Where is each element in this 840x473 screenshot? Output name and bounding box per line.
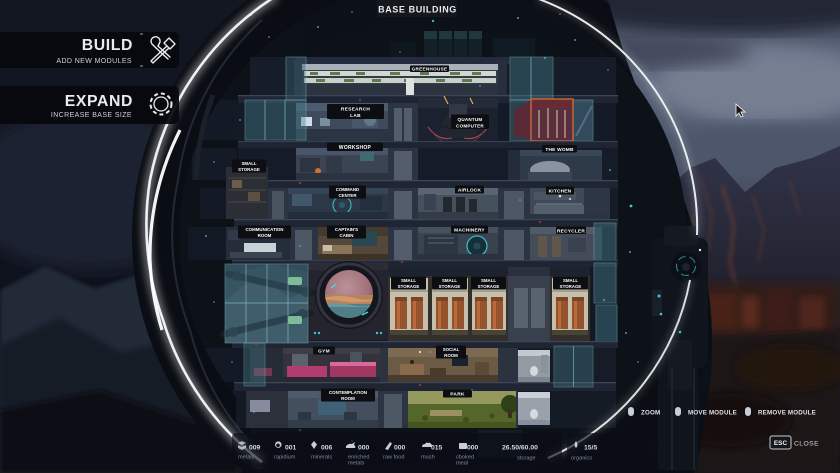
svg-text:CONTEMPLATION: CONTEMPLATION bbox=[329, 390, 367, 395]
svg-text:SMALL: SMALL bbox=[401, 278, 416, 283]
svg-text:MACHINERY: MACHINERY bbox=[454, 228, 485, 234]
svg-text:EXPAND: EXPAND bbox=[65, 93, 133, 110]
svg-text:rapidium: rapidium bbox=[274, 455, 296, 461]
svg-text:STORAGE: STORAGE bbox=[238, 167, 260, 172]
svg-text:ADD NEW MODULES: ADD NEW MODULES bbox=[56, 58, 132, 65]
svg-text:AIRLOCK: AIRLOCK bbox=[458, 188, 482, 194]
svg-text:COMMAND: COMMAND bbox=[336, 187, 359, 192]
svg-text:SMALL: SMALL bbox=[563, 278, 578, 283]
svg-text:STORAGE: STORAGE bbox=[478, 284, 500, 289]
svg-text:QUANTUM: QUANTUM bbox=[458, 117, 483, 122]
svg-text:PARK: PARK bbox=[450, 392, 465, 398]
svg-text:RESEARCH: RESEARCH bbox=[341, 106, 371, 112]
svg-text:STORAGE: STORAGE bbox=[439, 284, 461, 289]
svg-text:WORKSHOP: WORKSHOP bbox=[339, 145, 372, 151]
svg-text:organics: organics bbox=[571, 456, 592, 462]
svg-text:STORAGE: STORAGE bbox=[398, 284, 420, 289]
svg-text:raw food: raw food bbox=[383, 455, 404, 461]
svg-text:ROOM: ROOM bbox=[258, 233, 272, 238]
svg-text:minerals: minerals bbox=[311, 455, 332, 461]
svg-text:ROOM: ROOM bbox=[341, 396, 355, 401]
svg-text:000: 000 bbox=[394, 445, 406, 452]
svg-text:INCREASE BASE SIZE: INCREASE BASE SIZE bbox=[51, 112, 132, 119]
svg-text:THE WOMB: THE WOMB bbox=[545, 147, 574, 153]
svg-text:ZOOM: ZOOM bbox=[641, 410, 660, 417]
svg-text:CLOSE: CLOSE bbox=[794, 441, 819, 448]
svg-text:GYM: GYM bbox=[318, 349, 330, 355]
svg-text:storage: storage bbox=[517, 456, 536, 462]
svg-text:metals: metals bbox=[238, 455, 255, 461]
svg-text:COMPUTER: COMPUTER bbox=[456, 123, 484, 128]
svg-text:015: 015 bbox=[431, 445, 443, 452]
svg-text:GREENHOUSE: GREENHOUSE bbox=[412, 67, 448, 72]
svg-text:STORAGE: STORAGE bbox=[560, 284, 582, 289]
svg-text:000: 000 bbox=[358, 445, 370, 452]
svg-text:CENTER: CENTER bbox=[338, 193, 357, 198]
svg-text:meal: meal bbox=[456, 461, 468, 467]
svg-text:REMOVE MODULE: REMOVE MODULE bbox=[758, 410, 816, 417]
svg-text:RECYCLER: RECYCLER bbox=[557, 228, 585, 234]
svg-text:SOCIAL: SOCIAL bbox=[443, 347, 460, 352]
svg-text:15/5: 15/5 bbox=[584, 445, 597, 452]
svg-text:SMALL: SMALL bbox=[481, 278, 496, 283]
svg-text:ESC: ESC bbox=[774, 440, 788, 447]
svg-text:000: 000 bbox=[467, 445, 479, 452]
svg-text:CAPTAIN'S: CAPTAIN'S bbox=[335, 227, 358, 232]
svg-text:metals: metals bbox=[348, 461, 365, 467]
svg-text:006: 006 bbox=[321, 445, 333, 452]
svg-text:SMALL: SMALL bbox=[442, 278, 457, 283]
svg-text:SMALL: SMALL bbox=[241, 161, 256, 166]
svg-text:001: 001 bbox=[285, 445, 297, 452]
svg-text:ROOM: ROOM bbox=[444, 353, 458, 358]
svg-text:26.50/60.00: 26.50/60.00 bbox=[502, 445, 538, 452]
svg-text:mush: mush bbox=[421, 455, 435, 461]
svg-text:LAB: LAB bbox=[350, 113, 361, 119]
svg-text:009: 009 bbox=[249, 445, 261, 452]
svg-text:KITCHEN: KITCHEN bbox=[549, 189, 572, 195]
svg-text:MOVE MODULE: MOVE MODULE bbox=[688, 410, 737, 417]
svg-text:BASE BUILDING: BASE BUILDING bbox=[378, 5, 457, 15]
svg-text:BUILD: BUILD bbox=[82, 37, 133, 54]
svg-text:COMMUNICATION: COMMUNICATION bbox=[246, 227, 284, 232]
svg-text:CABIN: CABIN bbox=[340, 233, 354, 238]
